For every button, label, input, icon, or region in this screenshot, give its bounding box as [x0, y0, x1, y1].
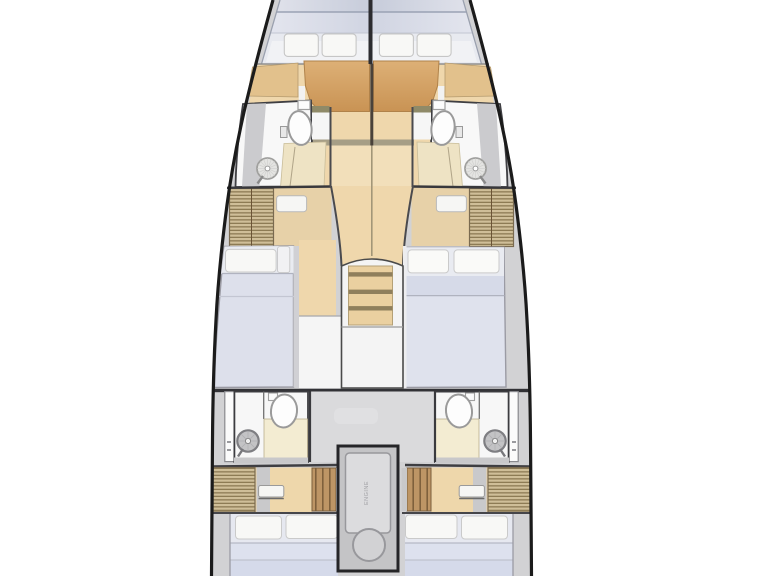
svg-text:ENGINE: ENGINE [364, 481, 370, 505]
